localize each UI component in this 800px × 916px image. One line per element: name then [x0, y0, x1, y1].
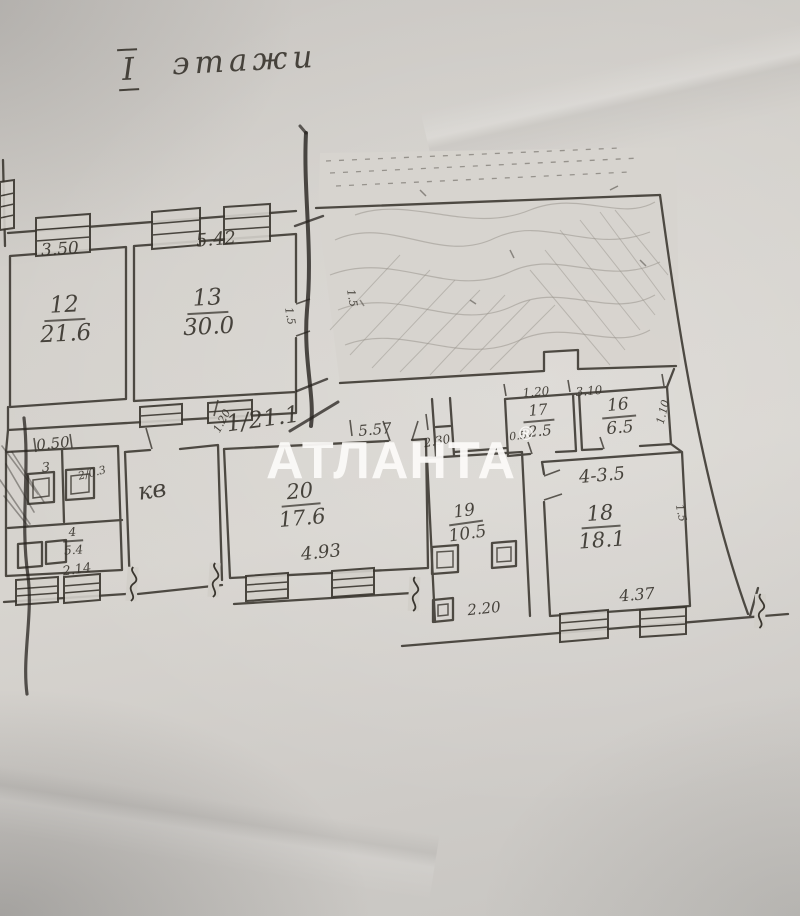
floorplan-photo: I этажи 3.50 12 21.6 5.42 13 30.0 1/21.1…	[0, 0, 800, 916]
scribble-patch	[318, 147, 680, 384]
room-18-area: 18.1	[578, 528, 626, 552]
room-18-height-note: 4-3.5	[578, 465, 626, 487]
dim-room20-width: 4.93	[300, 542, 342, 564]
watermark-text: АТЛАНТА	[266, 431, 516, 491]
room-16-area: 6.5	[606, 419, 634, 438]
room-4-label: 4 5.4	[62, 525, 84, 556]
dim-room4-width: 2.14	[62, 562, 92, 579]
dim-room17-width: 1.20	[522, 385, 550, 399]
dim-room16-width: 3.10	[575, 384, 603, 398]
dim-corridor-b: 0.50	[36, 435, 71, 453]
watermark: АТЛАНТА ®	[266, 431, 534, 491]
dim-room18-width: 4.37	[619, 585, 656, 604]
room-16-label: 16 6.5	[601, 396, 638, 439]
room-4-area: 5.4	[64, 543, 84, 556]
door-mark-2: 1.5	[345, 288, 359, 307]
room-19-label: 19 10.5	[444, 501, 487, 546]
door-mark-3: 1.5	[674, 503, 688, 522]
floor-title-roman: I	[117, 48, 139, 91]
floor-title-word: этажи	[171, 39, 318, 89]
room-4-number: 4	[62, 525, 83, 542]
room-18-number: 18	[580, 502, 620, 530]
room-3-number: 3	[41, 461, 50, 475]
door-mark-1: 1.5	[283, 306, 297, 325]
registered-trademark-icon: ®	[519, 424, 534, 446]
room-12-area: 21.6	[40, 322, 92, 348]
room-13-label: 13 30.0	[181, 286, 235, 341]
dim-room12-width: 3.50	[41, 240, 80, 260]
room-12-label: 12 21.6	[38, 293, 92, 348]
room-16-number: 16	[601, 396, 636, 420]
room-13-area: 30.0	[183, 315, 235, 341]
room-12-number: 12	[43, 293, 86, 322]
room-20-area: 17.6	[278, 506, 326, 531]
room-18-label: 18 18.1	[576, 501, 626, 552]
room-13-number: 13	[186, 286, 229, 315]
dim-room19-width: 2.20	[467, 600, 502, 618]
dim-room13-width: 5.42	[195, 229, 236, 250]
kv-label: кв	[136, 476, 167, 504]
